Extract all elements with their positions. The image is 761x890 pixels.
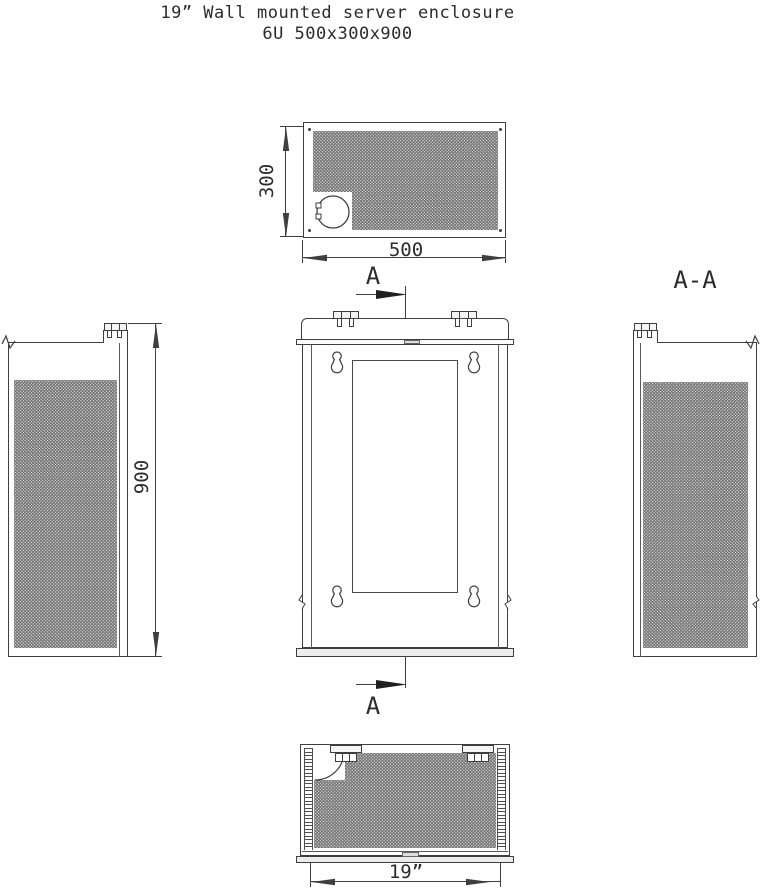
break-mark-icon	[1, 334, 16, 350]
hinge-icon	[462, 745, 494, 753]
dim-text-900: 900	[131, 447, 151, 507]
hinge-icon	[330, 745, 362, 753]
door-edge-line	[640, 342, 641, 657]
hinge-leg	[467, 319, 472, 327]
dim-extension-line	[128, 656, 162, 657]
hinge-leg	[117, 331, 122, 338]
door-edge-line	[119, 342, 120, 657]
hinge-icon	[634, 323, 657, 331]
section-cut-label-bottom: A	[358, 692, 388, 720]
drawing-title-line1: 19” Wall mounted server enclosure	[110, 3, 565, 23]
section-cut-arrow-icon	[376, 679, 407, 690]
dim-arrow-right-icon	[466, 878, 490, 886]
section-cut-label-top: A	[358, 262, 388, 290]
side-wall-inner-line	[498, 345, 499, 648]
hinge-knuckle-line	[350, 312, 351, 318]
keyhole-slot-icon	[329, 351, 345, 375]
edge-notch-icon	[504, 595, 512, 609]
hinge-leg	[337, 319, 342, 327]
corner-screw-dot	[308, 128, 311, 131]
rear-view-bottom-flange	[296, 648, 514, 657]
hinge-knuckle-line	[119, 324, 120, 330]
hinge-knuckle	[467, 753, 489, 762]
hinge-knuckle-line	[459, 312, 460, 318]
hinge-leg	[455, 319, 460, 327]
keyhole-slot-icon	[329, 585, 345, 609]
section-view-perforated-panel	[643, 382, 748, 648]
edge-notch-icon	[298, 595, 306, 609]
hinge-leg	[107, 331, 112, 338]
corner-screw-dot	[308, 229, 311, 232]
side-view-perforated-panel	[14, 380, 117, 648]
hinge-knuckle-line	[342, 754, 343, 761]
section-cut-arrow-icon	[376, 289, 407, 300]
hinge-leg	[647, 331, 652, 338]
dim-arrow-left-icon	[303, 254, 327, 262]
hinge-knuckle-line	[111, 324, 112, 330]
rack-rail-holes-left	[304, 748, 313, 850]
hinge-icon	[451, 311, 477, 319]
dim-arrow-up-icon	[282, 127, 290, 151]
corner-screw-dot	[499, 128, 502, 131]
drawing-title-line2: 6U 500x300x900	[110, 24, 565, 44]
rear-view-roof	[301, 318, 509, 340]
rack-rail-holes-right	[497, 748, 506, 850]
corner-screw-dot	[499, 229, 502, 232]
dim-arrow-down-icon	[152, 632, 160, 656]
dim-arrow-down-icon	[282, 213, 290, 237]
keyhole-slot-icon	[466, 351, 482, 375]
keyhole-slot-icon	[466, 585, 482, 609]
break-mark-icon	[745, 334, 760, 350]
cable-entry-hole-icon	[315, 194, 352, 231]
hinge-knuckle-line	[349, 754, 350, 761]
hinge-leg	[637, 331, 642, 338]
dim-arrow-right-icon	[482, 254, 506, 262]
dim-extension-line	[500, 863, 501, 887]
bottom-latch	[402, 852, 419, 857]
section-cut-line	[405, 286, 406, 318]
dim-text-300: 300	[256, 151, 276, 211]
technical-drawing-canvas: 19” Wall mounted server enclosure 6U 500…	[0, 0, 761, 890]
rear-panel-opening	[352, 360, 458, 593]
side-wall-inner-line	[311, 345, 312, 648]
hinge-knuckle-line	[474, 754, 475, 761]
dim-text-500: 500	[376, 239, 436, 261]
hinge-icon	[333, 311, 359, 319]
dim-arrow-left-icon	[311, 878, 335, 886]
hinge-knuckle-line	[468, 312, 469, 318]
hinge-knuckle-line	[481, 754, 482, 761]
hinge-knuckle-line	[649, 324, 650, 330]
hinge-leg	[349, 319, 354, 327]
hinge-knuckle-line	[341, 312, 342, 318]
hinge-icon	[104, 323, 127, 331]
dim-line-900	[155, 324, 156, 656]
edge-notch-icon	[752, 596, 760, 608]
hinge-knuckle-line	[641, 324, 642, 330]
hinge-knuckle	[335, 753, 357, 762]
top-latch	[404, 340, 420, 344]
section-view-label: A-A	[664, 266, 726, 294]
dim-arrow-up-icon	[152, 324, 160, 348]
dim-text-19in: 19”	[376, 861, 436, 883]
